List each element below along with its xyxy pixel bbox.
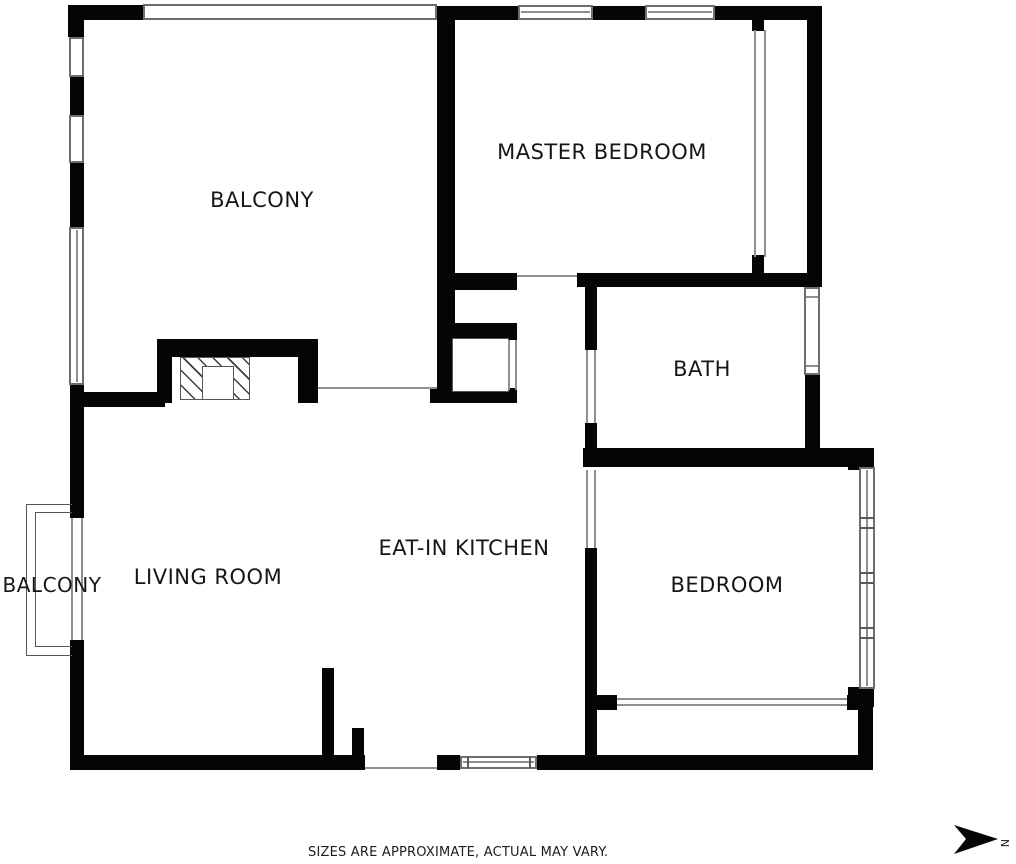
window-kitchen-bottom: [460, 756, 537, 769]
window-bedroom-divider-3a: [860, 627, 874, 629]
hall-closet-door-2: [515, 340, 517, 390]
wall-left-seg-3: [70, 163, 84, 227]
wall-bottom-left: [70, 755, 365, 770]
door-line-entry: [365, 767, 437, 769]
room-label-living-room: LIVING ROOM: [134, 565, 282, 589]
room-label-master-bedroom: MASTER BEDROOM: [497, 140, 707, 164]
wall-bedroom-right-mid: [848, 687, 874, 707]
master-closet-stub-bottom: [752, 255, 764, 273]
entry-nook-stub: [352, 728, 364, 756]
wall-bedroom-left: [585, 548, 597, 757]
fireplace-left-leg: [157, 339, 172, 403]
room-label-balcony-main: BALCONY: [210, 188, 314, 212]
fireplace-top-wall: [157, 339, 318, 357]
window-master-top-1: [518, 5, 593, 20]
room-label-balcony-side: BALCONY: [3, 573, 102, 597]
wall-living-top: [70, 392, 165, 407]
wall-top-master-2: [593, 6, 645, 20]
window-bedroom-divider-2b: [860, 582, 874, 584]
window-kitchen-end-right: [529, 757, 531, 768]
wall-bottom-right: [537, 755, 873, 770]
wall-left-seg-5: [70, 640, 84, 770]
wall-right-master: [807, 6, 822, 287]
window-master-top-1-mullion: [521, 11, 590, 13]
wall-left-seg-2: [70, 77, 84, 115]
hall-closet-door-1: [508, 340, 510, 390]
wall-master-bottom: [577, 273, 807, 287]
window-master-top-2-mullion: [648, 11, 712, 13]
window-bedroom-divider-1a: [860, 517, 874, 519]
door-jamb-bedroom-2: [594, 470, 596, 548]
north-arrow-label: N: [998, 839, 1011, 847]
hall-closet-bar-top: [450, 273, 517, 290]
fireplace-firebox: [202, 366, 234, 400]
door-line-living-kitchen: [318, 387, 437, 389]
disclaimer-text: SIZES ARE APPROXIMATE, ACTUAL MAY VARY.: [308, 845, 608, 860]
window-left-1: [69, 37, 84, 77]
fireplace-right-leg: [298, 339, 318, 403]
window-bedroom-mullion-v: [866, 470, 868, 686]
wall-bottom-mid: [437, 755, 460, 770]
bedroom-closet-line-1: [617, 698, 847, 700]
window-bath-mullion-1: [806, 296, 818, 298]
door-line-master: [517, 275, 577, 277]
north-arrow-icon: N: [950, 822, 1014, 858]
wall-bath-left-top: [585, 273, 597, 350]
window-master-top-2: [645, 5, 715, 20]
wall-bath-bedroom-divider: [583, 448, 873, 467]
window-bath-mullion-2: [806, 365, 818, 367]
hall-closet-interior: [452, 338, 509, 392]
master-closet-line-1: [754, 30, 756, 257]
window-bedroom-divider-2a: [860, 572, 874, 574]
door-jamb-bath-1: [586, 350, 588, 423]
window-kitchen-end-left: [467, 757, 469, 768]
room-label-bedroom: BEDROOM: [670, 573, 783, 597]
room-label-bath: BATH: [673, 357, 731, 381]
bedroom-closet-line-2: [617, 704, 847, 706]
window-bedroom-divider-3b: [860, 637, 874, 639]
bedroom-closet-stub-left: [585, 695, 617, 710]
window-bath-right: [804, 287, 820, 375]
wall-top-master-3: [715, 6, 822, 20]
window-balcony-top: [143, 4, 437, 20]
room-label-eat-in-kitchen: EAT-IN KITCHEN: [378, 536, 549, 560]
door-jamb-bath-2: [594, 350, 596, 423]
entry-nook-wall: [322, 668, 334, 756]
window-left-long-mullion: [76, 230, 78, 382]
wall-top-balcony: [68, 5, 143, 20]
door-jamb-bedroom-1: [586, 470, 588, 548]
window-kitchen-mullion: [463, 761, 534, 763]
window-bedroom-divider-1b: [860, 527, 874, 529]
wall-right-below-bath-win: [805, 375, 820, 455]
floor-plan: BALCONY MASTER BEDROOM BATH LIVING ROOM …: [0, 0, 1016, 864]
window-left-2: [69, 115, 84, 163]
master-closet-line-2: [764, 30, 766, 257]
